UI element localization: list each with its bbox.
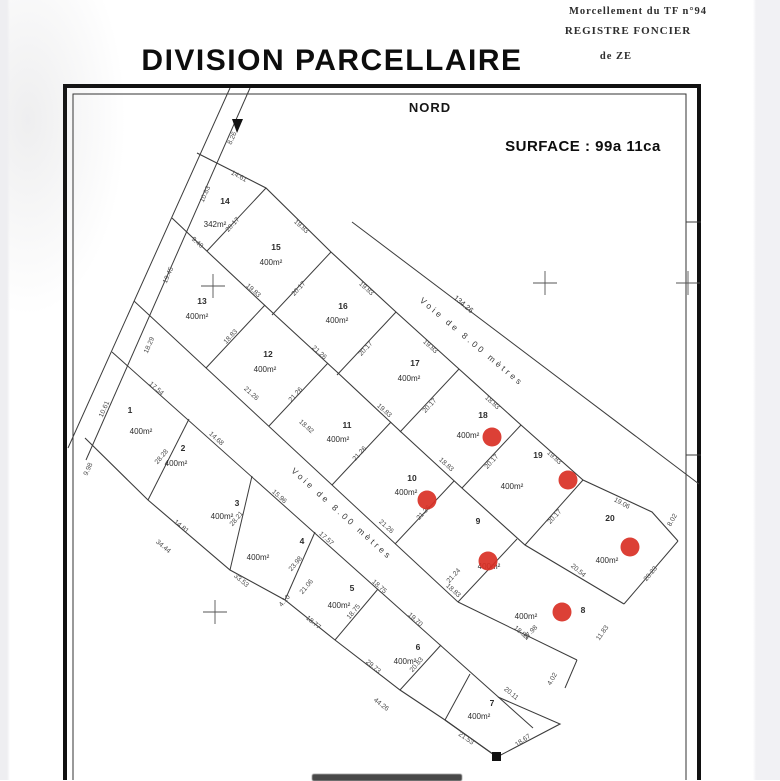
boundary-polyline <box>197 153 678 541</box>
parcel-number-18: 18 <box>478 410 488 420</box>
dimension-label: 21.06 <box>299 578 315 596</box>
dimension-label: 4.02 <box>546 672 559 687</box>
parcel-area-4: 400m² <box>247 553 270 562</box>
dimension-label: 9.40 <box>190 236 205 250</box>
red-dot-parcel-18 <box>483 428 502 447</box>
dimension-label: 10.61 <box>98 400 111 419</box>
scanned-plan-page: Morcellement du TF n°94REGISTRE FONCIERd… <box>0 0 780 780</box>
red-dot-parcel-10 <box>418 491 437 510</box>
dimension-label: 33.53 <box>232 573 250 589</box>
parcel-area-18: 400m² <box>457 431 480 440</box>
road2-label: Voie de 8.00 mètres <box>289 466 394 562</box>
page-title: DIVISION PARCELLAIRE <box>141 44 522 77</box>
dimension-label: 18.83 <box>437 457 454 474</box>
parcel-number-5: 5 <box>350 583 355 593</box>
registry-header: Morcellement du TF n°94REGISTRE FONCIERd… <box>565 6 707 62</box>
parcel-number-10: 10 <box>407 473 417 483</box>
dimension-label: 18.82 <box>297 419 314 436</box>
dimension-label: 20.17 <box>547 508 564 525</box>
road1-length-label: 134.26 <box>452 293 475 315</box>
parcel-area-11: 400m² <box>327 435 350 444</box>
parcel-number-8: 8 <box>581 605 586 615</box>
boundary-line <box>565 660 577 688</box>
dimension-label: 21.53 <box>457 731 475 747</box>
road-labels: Voie de 8.00 mètres134.26Voie de 8.00 mè… <box>289 293 526 562</box>
surface-label: SURFACE : 99a 11ca <box>505 138 661 155</box>
dimension-label: 9.98 <box>83 462 95 477</box>
parcel-number-4: 4 <box>300 536 305 546</box>
dimension-label: 19.06 <box>613 497 631 511</box>
header-line-1: Morcellement du TF n°94 <box>569 6 707 17</box>
dimension-label: 23.98 <box>288 555 304 573</box>
parcel-number-13: 13 <box>197 296 207 306</box>
red-dot-parcel-19 <box>559 471 578 490</box>
parcel-area-19: 400m² <box>501 482 524 491</box>
parcel-number-11: 11 <box>343 420 352 430</box>
boundary-line <box>335 589 378 640</box>
north-label: NORD <box>409 100 451 115</box>
parcel-area-14: 342m² <box>204 220 227 229</box>
dimension-label: 15.96 <box>270 489 287 506</box>
dimension-label: 17.57 <box>317 531 334 548</box>
parcel-number-1: 1 <box>128 405 133 415</box>
dimension-label: 19.83 <box>292 219 309 236</box>
parcel-number-7: 7 <box>490 698 495 708</box>
dimension-label: 19.83 <box>421 339 438 356</box>
parcel-number-20: 20 <box>605 513 615 523</box>
red-dot-parcel-9 <box>479 552 498 571</box>
parcel-area-12: 400m² <box>254 365 277 374</box>
dimension-label: 11.83 <box>595 624 610 642</box>
dimension-label: 4.10 <box>278 594 292 609</box>
dimension-label: 21.24 <box>446 567 463 584</box>
dimension-label: 19.83 <box>244 283 261 300</box>
parcel-area-3: 400m² <box>211 512 234 521</box>
boundary-polyline <box>445 697 560 757</box>
boundary-line <box>68 88 230 448</box>
dimension-label: 21.26 <box>242 386 259 403</box>
dimension-label: 10.83 <box>199 185 212 204</box>
parcel-area-8: 400m² <box>515 612 538 621</box>
dimension-label: 14.81 <box>172 519 190 535</box>
parcel-number-17: 17 <box>410 358 420 368</box>
dimension-label: 20.17 <box>422 397 439 414</box>
dimension-label: 18.83 <box>483 395 500 412</box>
parcel-area-2: 400m² <box>165 459 188 468</box>
dimension-label: 20.17 <box>291 280 308 297</box>
dimension-label: 20.23 <box>643 565 659 583</box>
dimension-label: 21.26 <box>352 445 369 462</box>
dimension-label: 21.26 <box>377 519 394 536</box>
dimension-label: 21.26 <box>288 386 305 403</box>
parcel-number-14: 14 <box>220 196 230 206</box>
dimension-label: 18.83 <box>223 328 240 345</box>
parcel-number-6: 6 <box>416 642 421 652</box>
parcel-boundaries <box>68 88 701 761</box>
dimension-label: 18.67 <box>514 733 532 749</box>
dimension-label: 20.17 <box>358 340 375 357</box>
header-line-2: REGISTRE FONCIER <box>565 25 691 37</box>
dimension-label: 18.77 <box>304 615 322 631</box>
parcel-area-5: 400m² <box>328 601 351 610</box>
boundary-line <box>352 222 699 484</box>
dimension-label: 19.83 <box>545 450 562 467</box>
dimension-label: 8.02 <box>666 513 679 528</box>
parcel-number-9: 9 <box>476 516 481 526</box>
red-dot-parcel-20 <box>621 538 640 557</box>
red-dot-parcel-8 <box>553 603 572 622</box>
parcel-number-15: 15 <box>271 242 281 252</box>
parcel-area-17: 400m² <box>398 374 421 383</box>
parcel-map-svg: Morcellement du TF n°94REGISTRE FONCIERd… <box>0 0 780 780</box>
dimension-label: 44.26 <box>372 697 390 713</box>
parcel-area-10: 400m² <box>395 488 418 497</box>
dimension-label: 21.26 <box>310 345 327 362</box>
dimension-label: 17.54 <box>147 381 164 398</box>
dimension-label: 19.70 <box>406 612 423 629</box>
parcel-area-15: 400m² <box>260 258 283 267</box>
dimension-label: 14.61 <box>230 170 248 184</box>
parcel-area-20: 400m² <box>596 556 619 565</box>
dimension-label: 20.17 <box>484 453 501 470</box>
parcel-number-16: 16 <box>338 301 348 311</box>
parcel-number-19: 19 <box>533 450 543 460</box>
dimension-label: 34.44 <box>154 539 172 555</box>
parcel-area-1: 400m² <box>130 427 153 436</box>
parcel-number-2: 2 <box>181 443 186 453</box>
dimension-label: 8.26 <box>227 131 239 146</box>
parcel-number-12: 12 <box>263 349 273 359</box>
survey-point-marker <box>492 752 501 761</box>
parcel-area-16: 400m² <box>326 316 349 325</box>
dimension-label: 18.29 <box>143 336 156 355</box>
dimension-labels: 8.2610.8319.4518.2910.619.9814.6119.8319… <box>83 131 679 749</box>
parcel-area-13: 400m² <box>186 312 209 321</box>
dimension-label: 18.75 <box>370 579 387 596</box>
dimension-label: 29.73 <box>364 659 382 675</box>
boundary-line <box>445 674 470 720</box>
header-line-3: de ZE <box>600 51 632 62</box>
dimension-label: 19.45 <box>162 266 175 285</box>
dimension-label: 20.17 <box>225 216 242 233</box>
parcel-area-7: 400m² <box>468 712 491 721</box>
boundary-polyline <box>85 438 497 757</box>
parcel-area-6: 400m² <box>394 657 417 666</box>
boundary-line <box>400 645 441 690</box>
parcel-number-3: 3 <box>235 498 240 508</box>
dimension-label: 19.83 <box>357 281 374 298</box>
